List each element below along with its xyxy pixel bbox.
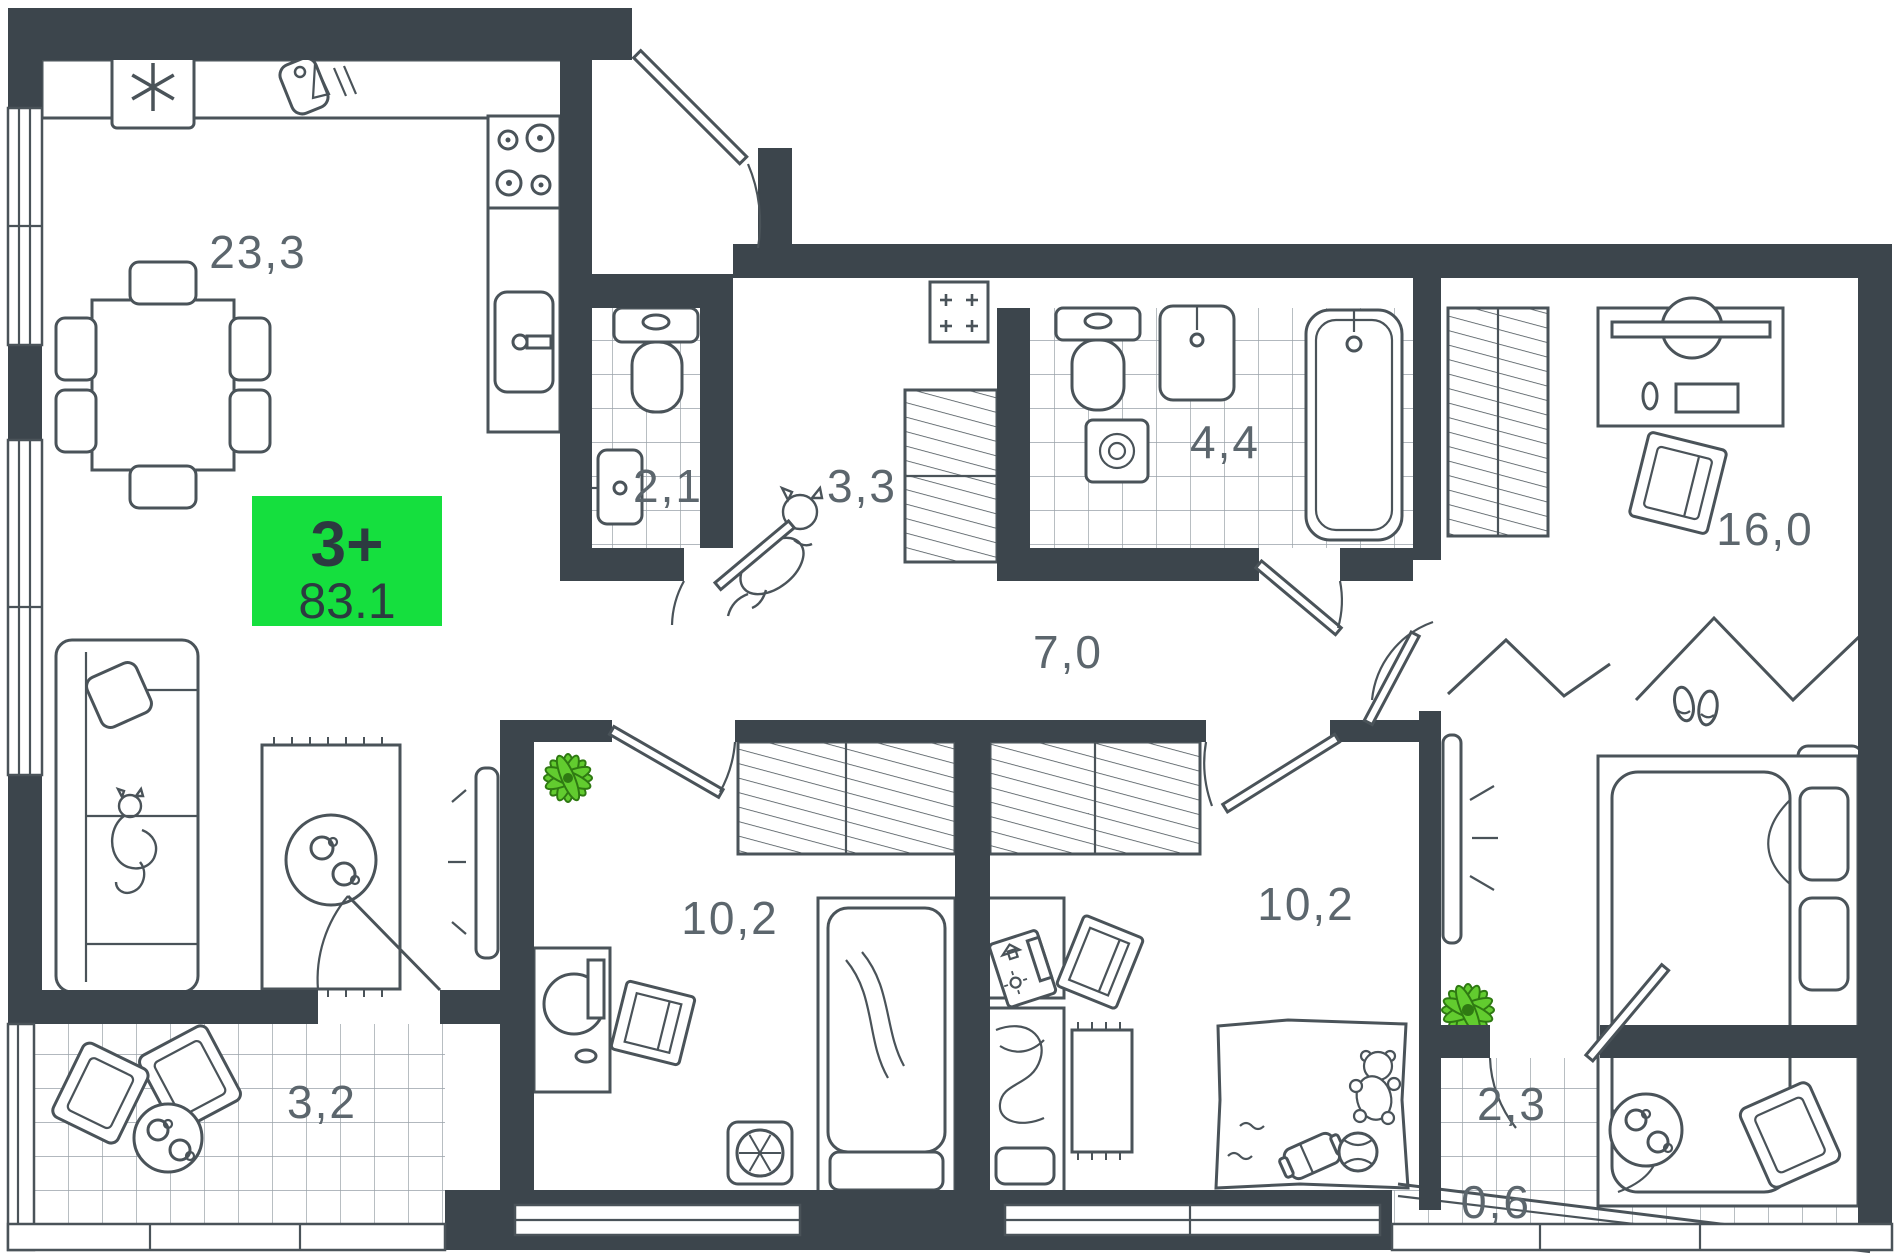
bathtub	[1306, 310, 1402, 540]
entry-hall-items	[728, 282, 997, 616]
bedroom-middle-door	[1204, 734, 1339, 812]
label-bathroom-small: 2,1	[633, 460, 703, 512]
master-desk	[1598, 298, 1783, 426]
window-left-1	[8, 108, 42, 345]
floor-plan: 23,3 2,1 3,3 4,4 7,0 10,2 10,2 16,0 3,2 …	[0, 0, 1900, 1258]
sofa	[56, 640, 198, 992]
living-rug-table	[262, 737, 400, 997]
badge-area: 83.1	[298, 573, 395, 629]
wardrobe-bedroom-left	[738, 742, 955, 854]
entrance-door	[634, 51, 760, 248]
bed-pillow	[996, 1148, 1054, 1184]
label-loggia-right: 2,3	[1477, 1078, 1547, 1130]
slippers	[1672, 686, 1720, 727]
master-wardrobe	[1448, 308, 1548, 536]
bed-bedroom-left	[818, 898, 955, 1192]
bedroom-left-furniture	[534, 742, 955, 1192]
bed-bedroom-middle	[988, 1008, 1064, 1192]
label-bathroom-main: 4,4	[1190, 416, 1260, 468]
hall-wardrobe	[905, 390, 997, 562]
toy-car	[1276, 1128, 1347, 1183]
toy-ball	[1339, 1133, 1377, 1171]
bedroom-master-door	[1364, 622, 1433, 725]
floor-plan-canvas: 23,3 2,1 3,3 4,4 7,0 10,2 10,2 16,0 3,2 …	[0, 0, 1900, 1258]
window-bottom-2	[1005, 1205, 1380, 1235]
label-bedroom-left: 10,2	[681, 892, 779, 944]
label-corridor: 7,0	[1033, 626, 1103, 678]
coffee-table	[286, 815, 376, 905]
squiggle	[1228, 1153, 1252, 1159]
bedroom-middle-furniture	[988, 742, 1408, 1192]
tv-unit	[448, 768, 498, 958]
badge-type: 3+	[311, 508, 384, 580]
pillow	[1800, 788, 1848, 880]
dining-table-set	[56, 262, 270, 508]
desk-bedroom-left	[534, 948, 610, 1092]
label-bedroom-middle: 10,2	[1257, 878, 1355, 930]
electric-panel	[930, 282, 988, 342]
apartment-badge: 3+ 83.1	[252, 496, 442, 629]
heater-radiator	[1443, 735, 1498, 943]
plant-bedroom-left	[543, 753, 592, 802]
kitchen-faucet-handle	[527, 336, 551, 348]
window-bottom-1	[515, 1205, 800, 1235]
bedroom-left-door	[610, 727, 736, 798]
pillow	[1800, 898, 1848, 990]
toilet-main-bowl	[1072, 340, 1124, 410]
ac-unit-bedroom-left	[728, 1122, 792, 1184]
teddy-bear	[1350, 1051, 1400, 1124]
loggia-right-table	[1610, 1094, 1682, 1166]
master-chair	[1629, 432, 1727, 535]
label-kitchen-living: 23,3	[209, 226, 307, 278]
zigzag-decor-left	[1448, 640, 1610, 696]
desk-bedroom-middle	[988, 898, 1064, 1008]
play-mat	[1216, 1020, 1408, 1188]
label-bedroom-master: 16,0	[1716, 503, 1814, 555]
label-loggia-right-cold: 0,6	[1461, 1176, 1531, 1228]
chair-bedroom-left	[611, 981, 696, 1066]
wardrobe-bedroom-middle	[990, 742, 1200, 854]
toilet-bowl	[632, 342, 682, 412]
squiggle	[1240, 1123, 1264, 1129]
washing-machine	[1086, 420, 1148, 482]
label-loggia-left: 3,2	[287, 1076, 357, 1128]
zigzag-decor-right	[1636, 618, 1862, 700]
kitchen-faucet	[513, 335, 527, 349]
rug-bedroom-middle	[1072, 1022, 1132, 1160]
loggia-left-table	[134, 1104, 202, 1172]
dog	[728, 488, 822, 616]
label-entry-hall: 3,3	[827, 460, 897, 512]
dining-table	[92, 300, 234, 470]
window-left-2	[8, 440, 42, 775]
chair-bedroom-middle	[1056, 915, 1144, 1009]
bathroom-main-door	[1256, 561, 1342, 635]
